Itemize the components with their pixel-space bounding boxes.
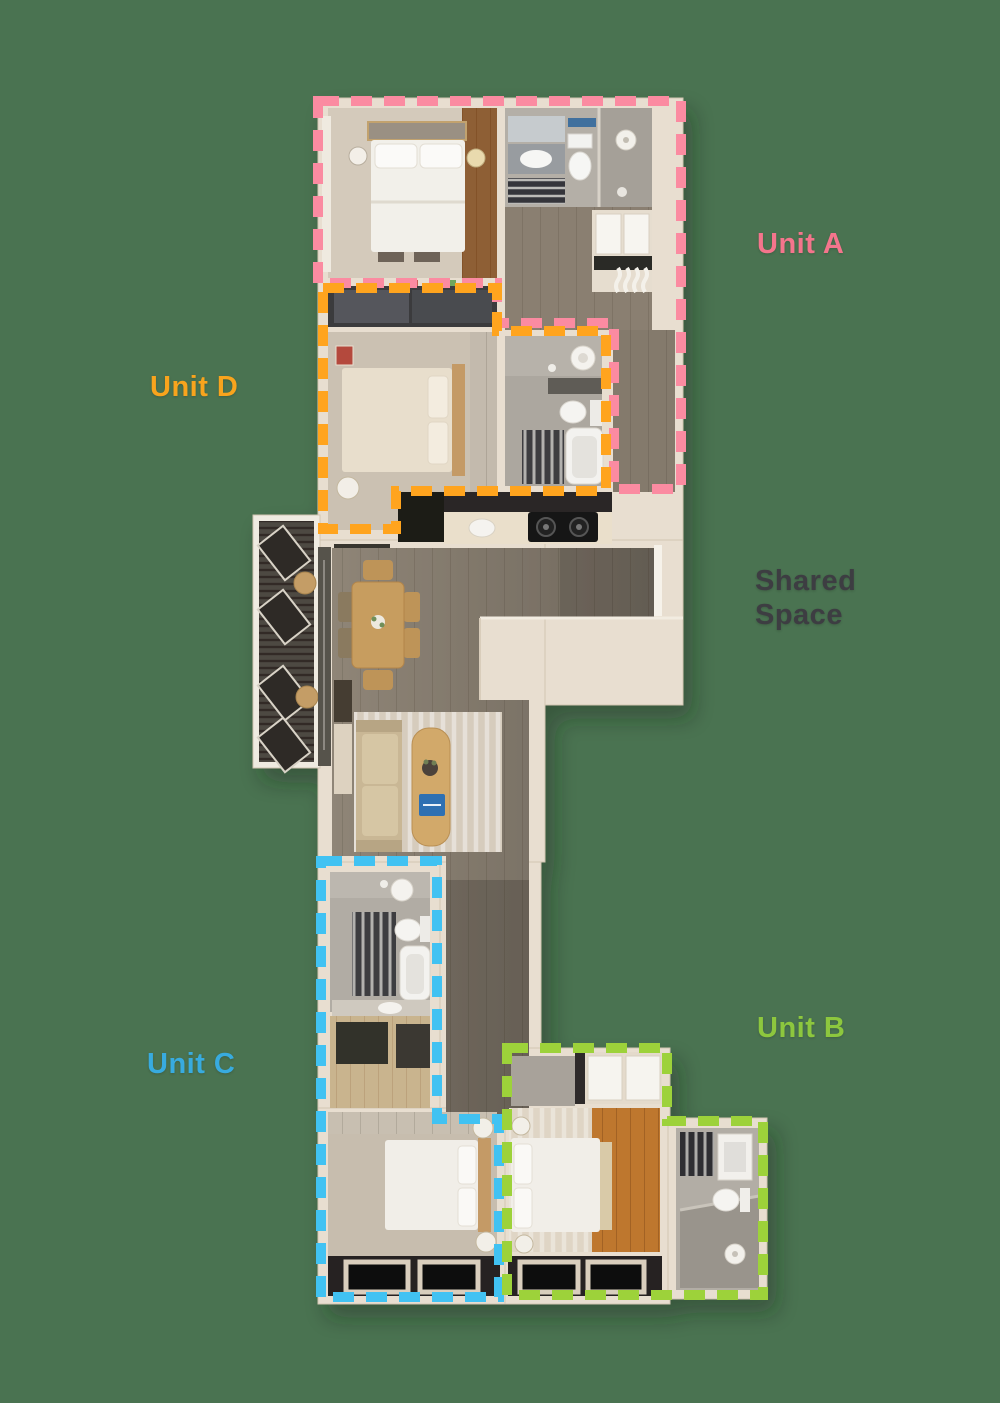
window-icon bbox=[346, 1262, 408, 1292]
bedside-lamp-icon bbox=[515, 1235, 533, 1253]
dining-chair-icon bbox=[404, 628, 420, 658]
bed-headboard bbox=[368, 122, 466, 140]
unit-c-bathroom bbox=[330, 872, 430, 1016]
dining-chair-icon bbox=[404, 592, 420, 622]
window-icon bbox=[420, 1262, 478, 1292]
pillow bbox=[375, 144, 417, 168]
pillow bbox=[514, 1188, 532, 1228]
pouf-icon bbox=[296, 686, 318, 708]
toilet-icon bbox=[395, 919, 421, 941]
floorplan-canvas: Unit A Unit D Shared Space Unit C Unit B bbox=[0, 0, 1000, 1403]
kitchen-sink-icon bbox=[469, 519, 495, 537]
window-icon bbox=[588, 1262, 644, 1292]
toilet-icon bbox=[569, 152, 591, 180]
mirror-icon bbox=[391, 879, 413, 901]
unit-b-bathroom bbox=[676, 1128, 759, 1290]
pillow bbox=[428, 422, 448, 464]
window-icon bbox=[520, 1262, 578, 1292]
wall-art bbox=[336, 346, 353, 365]
dining-chair-icon bbox=[363, 670, 393, 690]
pouf-icon bbox=[294, 572, 316, 594]
label-unit-b: Unit B bbox=[757, 1012, 845, 1045]
pillow bbox=[458, 1146, 476, 1184]
unit-b-entry bbox=[511, 1052, 662, 1106]
floor-lamp-icon bbox=[337, 477, 359, 499]
bedside-lamp-icon bbox=[512, 1117, 530, 1135]
bed-headboard bbox=[478, 1138, 491, 1232]
closet-door bbox=[588, 1056, 622, 1100]
bed-bench bbox=[600, 1142, 612, 1230]
label-unit-a: Unit A bbox=[757, 228, 844, 261]
unit-d-bathroom bbox=[505, 336, 603, 486]
pendant-lamp-icon bbox=[349, 147, 367, 165]
label-unit-c: Unit C bbox=[147, 1048, 235, 1081]
pillow bbox=[458, 1188, 476, 1226]
vanity-mirror bbox=[508, 116, 565, 142]
closet-door bbox=[626, 1056, 660, 1100]
bath-shelf bbox=[568, 118, 596, 127]
unit-c-closet bbox=[330, 1016, 430, 1108]
toilet-icon bbox=[560, 401, 586, 423]
shared-space-line2: Space bbox=[755, 598, 856, 632]
label-shared-space: Shared Space bbox=[755, 564, 856, 632]
unit-c-bedroom bbox=[328, 1112, 500, 1296]
pillow bbox=[420, 144, 462, 168]
toilet-icon bbox=[713, 1189, 739, 1211]
dining-chair-icon bbox=[363, 560, 393, 580]
unit-a-bedroom bbox=[322, 108, 497, 278]
unit-b-bedroom bbox=[508, 1108, 662, 1296]
label-unit-d: Unit D bbox=[150, 371, 238, 404]
unit-a-bathroom bbox=[505, 108, 652, 207]
pillow bbox=[514, 1144, 532, 1184]
shared-space-line1: Shared bbox=[755, 564, 856, 598]
wardrobe bbox=[336, 1022, 388, 1064]
bed-headboard bbox=[452, 364, 465, 476]
wardrobe bbox=[396, 1024, 430, 1068]
bedside-lamp-icon bbox=[476, 1232, 496, 1252]
pillow bbox=[428, 376, 448, 418]
floorplan-image bbox=[0, 0, 1000, 1403]
coffee-table bbox=[412, 728, 450, 846]
pendant-lamp-icon bbox=[467, 149, 485, 167]
balcony bbox=[258, 521, 331, 772]
